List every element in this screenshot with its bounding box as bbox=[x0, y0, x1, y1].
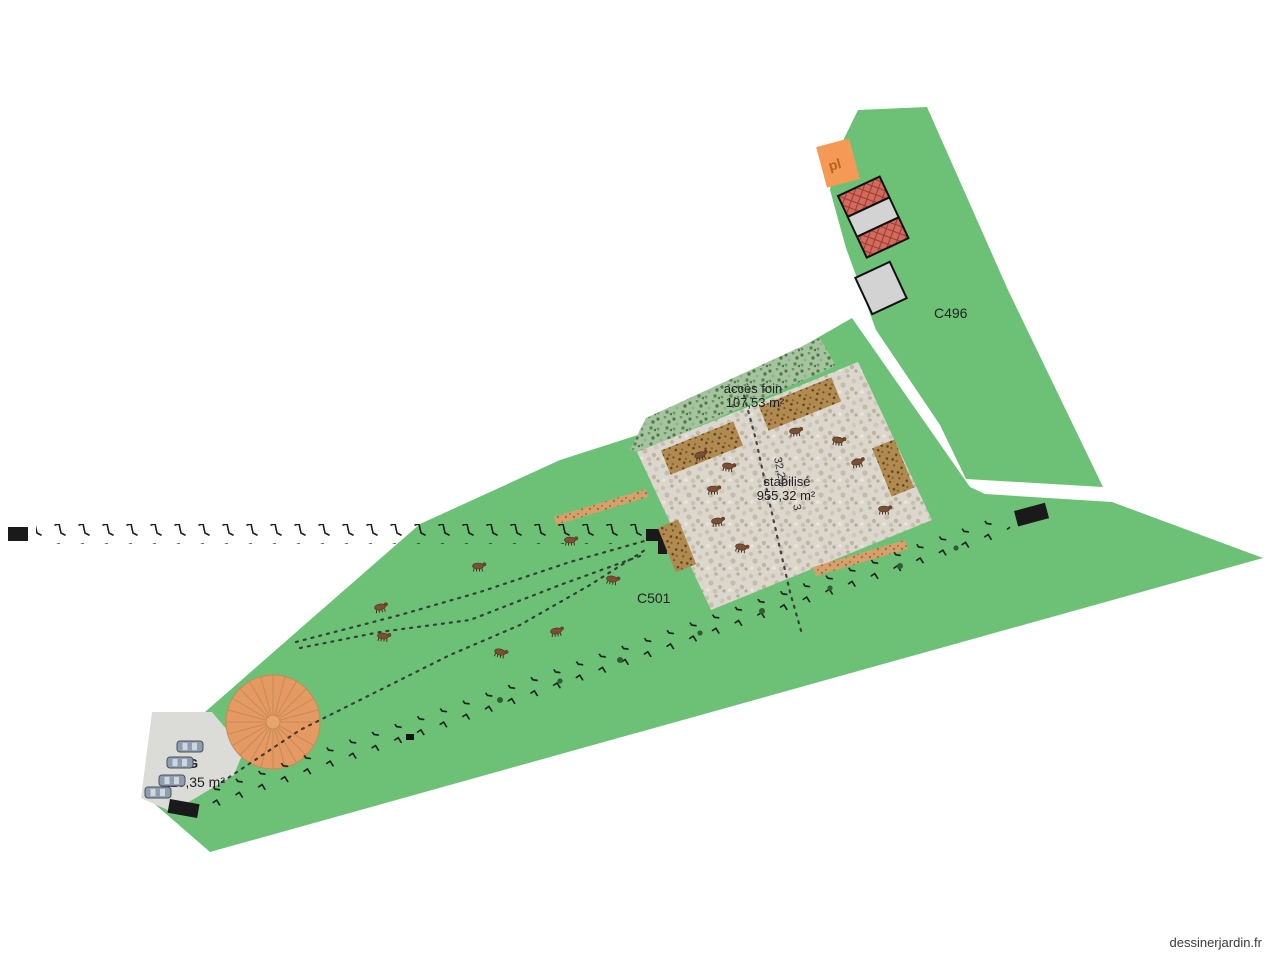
fence-post-row bbox=[36, 524, 654, 544]
acces-foin-label: accès foin bbox=[724, 381, 783, 396]
stabilise-area: 955,32 m² bbox=[757, 488, 816, 503]
gate-marker-icon[interactable] bbox=[8, 527, 28, 541]
fence-west[interactable] bbox=[8, 524, 654, 544]
parcel-c501-label: C501 bbox=[637, 590, 671, 606]
garden-plan-canvas: accès foin 107,53 m² stabilisé 955,32 m²… bbox=[0, 0, 1280, 960]
watermark: dessinerjardin.fr bbox=[1170, 935, 1263, 950]
plan-drawing: accès foin 107,53 m² stabilisé 955,32 m²… bbox=[0, 0, 1280, 960]
parcel-c496-label: C496 bbox=[934, 305, 968, 321]
acces-foin-area: 107,53 m² bbox=[726, 395, 785, 410]
